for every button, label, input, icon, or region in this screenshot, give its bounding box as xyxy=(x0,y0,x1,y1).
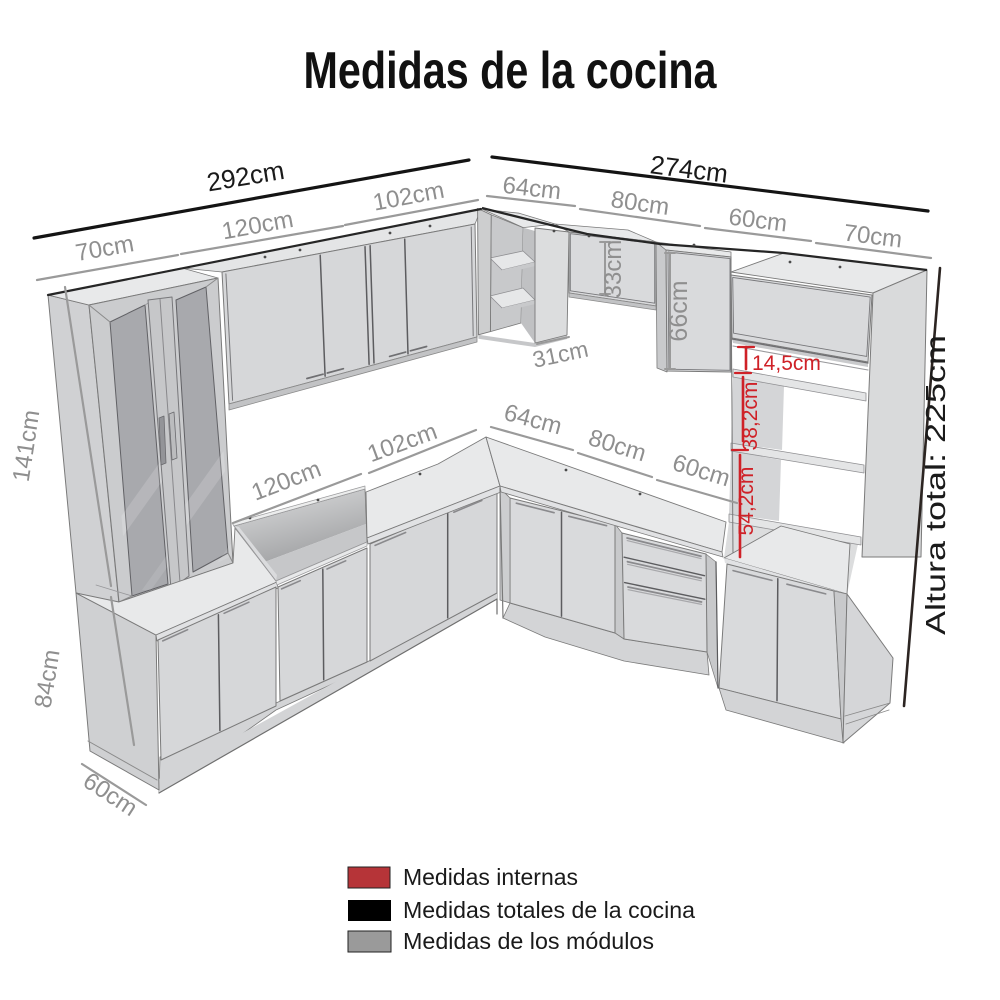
svg-text:Medidas de los módulos: Medidas de los módulos xyxy=(403,928,654,954)
svg-text:14,5cm: 14,5cm xyxy=(752,352,821,375)
svg-text:Altura total: 225cm: Altura total: 225cm xyxy=(920,335,951,635)
svg-text:38,2cm: 38,2cm xyxy=(739,382,762,451)
svg-text:33cm: 33cm xyxy=(600,240,627,299)
svg-text:Medidas de la cocina: Medidas de la cocina xyxy=(304,42,718,100)
svg-text:54,2cm: 54,2cm xyxy=(735,467,758,536)
svg-text:Medidas totales de la cocina: Medidas totales de la cocina xyxy=(403,897,695,923)
svg-text:66cm: 66cm xyxy=(665,280,693,341)
svg-text:Medidas internas: Medidas internas xyxy=(403,864,578,890)
